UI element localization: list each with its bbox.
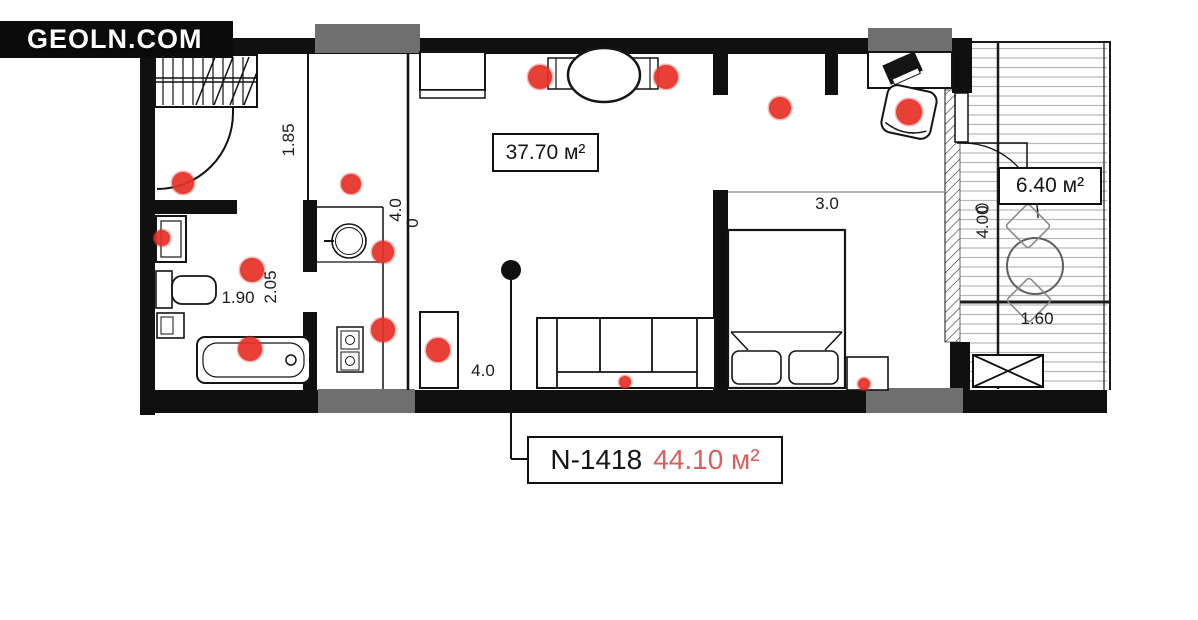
window-bottom-left	[318, 389, 415, 413]
marker-dot	[371, 318, 395, 342]
bedroom	[728, 230, 888, 390]
marker-dot	[154, 230, 170, 246]
marker-dot	[372, 241, 394, 263]
floor-plan-page: GEOLN.COM 37.70 м² 6.40 м² N-1418 44.10 …	[0, 0, 1198, 620]
balcony-decking	[960, 42, 1111, 390]
marker-dot	[769, 97, 791, 119]
unit-leader	[511, 280, 530, 459]
window-bottom-right	[866, 388, 963, 413]
marker-dot	[172, 172, 194, 194]
marker-dot	[238, 337, 262, 361]
pillow-left	[732, 351, 781, 384]
marker-dot	[341, 174, 361, 194]
marker-dot	[858, 378, 870, 390]
room-area-label-main: 37.70 м²	[492, 133, 599, 172]
pillow-right	[789, 351, 838, 384]
marker-dot	[619, 376, 631, 388]
marker-dot	[896, 99, 922, 125]
dining-table	[568, 48, 640, 102]
unit-area: 44.10 м²	[653, 444, 759, 476]
unit-number: N-1418	[550, 444, 642, 476]
leader-dot	[501, 260, 521, 280]
workspace	[868, 52, 952, 141]
balcony-door-leaf	[955, 93, 968, 142]
room-area-label-balcony: 6.40 м²	[998, 167, 1102, 205]
marker-dot	[426, 338, 450, 362]
geoln-logo: GEOLN.COM	[0, 21, 233, 58]
window-top-left	[315, 24, 420, 53]
closet-stairs	[155, 55, 257, 107]
bathroom	[156, 216, 310, 383]
marker-dot	[528, 65, 552, 89]
unit-label: N-1418 44.10 м²	[527, 436, 783, 484]
floor-plan-svg	[0, 0, 1198, 620]
toilet-tank	[156, 271, 172, 308]
window-top-right	[868, 28, 952, 53]
dresser	[420, 52, 485, 90]
entrance-door	[157, 107, 233, 189]
marker-dot	[654, 65, 678, 89]
marker-dot	[240, 258, 264, 282]
toilet	[172, 276, 216, 304]
shaft-box	[973, 355, 1043, 387]
